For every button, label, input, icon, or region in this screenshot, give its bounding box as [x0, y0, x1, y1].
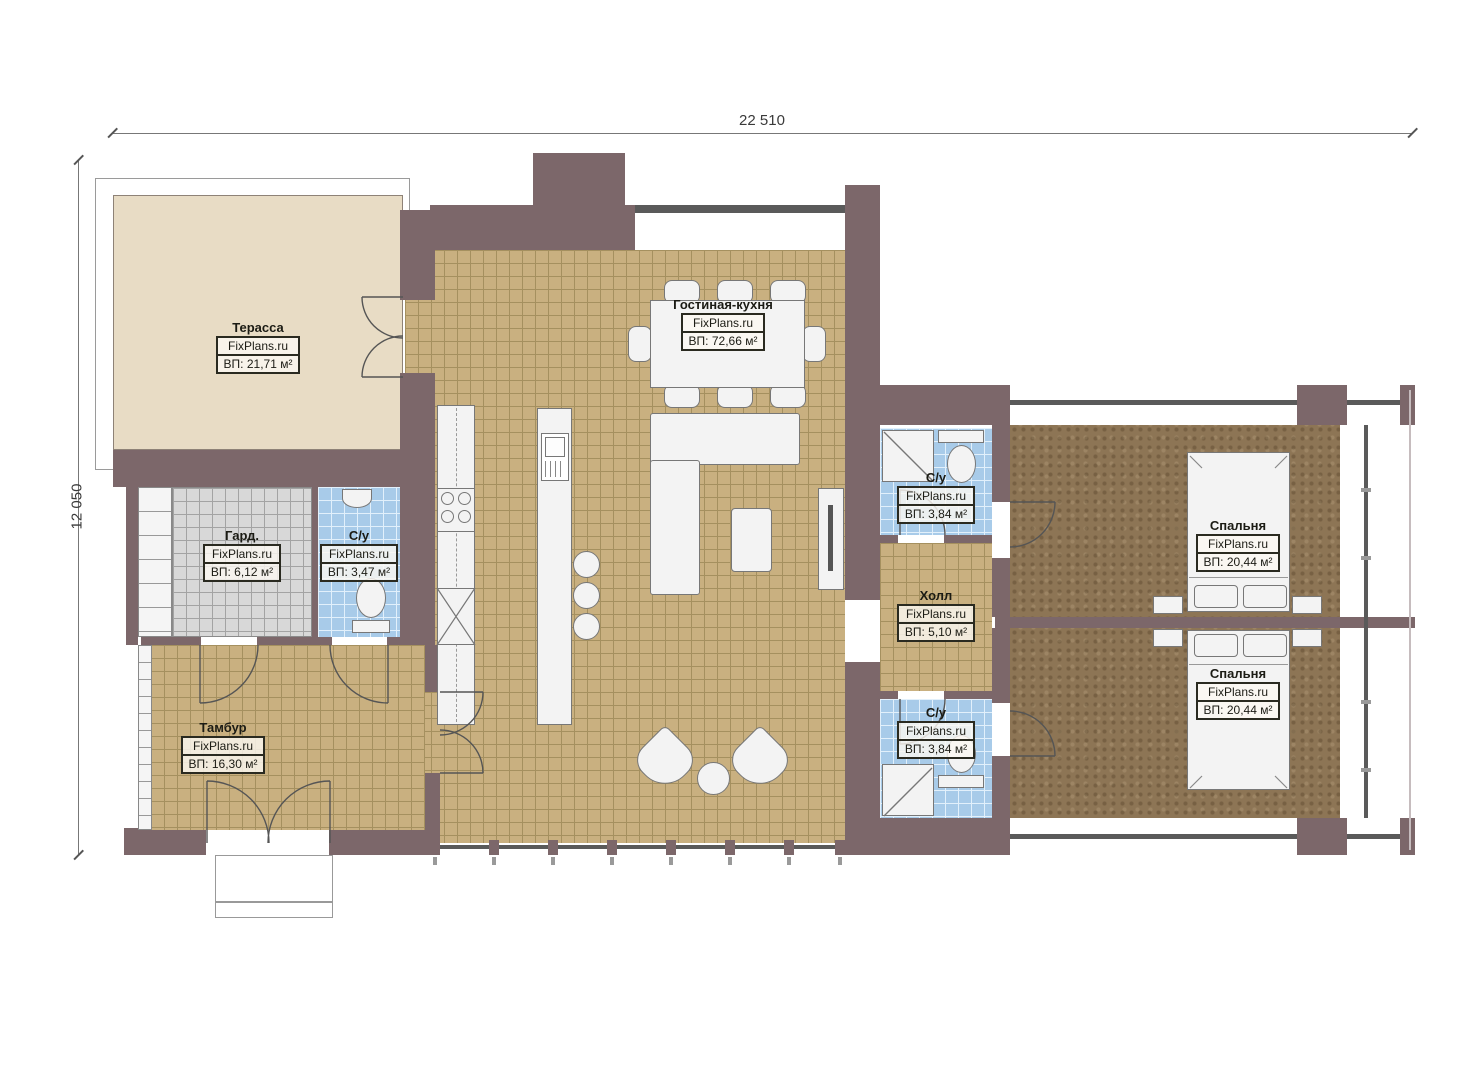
- burner: [441, 492, 454, 505]
- bar-stool: [573, 582, 600, 609]
- room-name: Спальня: [1210, 518, 1266, 533]
- entry-porch: [215, 855, 333, 902]
- room-label-bedroom-2: Спальня FixPlans.ru ВП: 20,44 м²: [1190, 666, 1286, 720]
- room-name: Гард.: [225, 528, 259, 543]
- room-brand: FixPlans.ru: [899, 606, 973, 622]
- shower-tray: [882, 764, 934, 816]
- wall: [944, 535, 992, 543]
- mullion: [1361, 556, 1371, 560]
- glazing-post: [489, 840, 499, 855]
- nightstand: [1292, 596, 1322, 614]
- wall: [845, 818, 1010, 855]
- wall: [124, 828, 140, 855]
- room-brand: FixPlans.ru: [899, 723, 973, 739]
- room-label-terrace: Терасса FixPlans.ru ВП: 21,71 м²: [198, 320, 318, 374]
- toilet-bowl: [356, 578, 386, 618]
- dimension-height-label: 12 050: [69, 452, 86, 562]
- wall: [126, 487, 138, 645]
- glass-wall-right: [1364, 425, 1368, 818]
- room-area: ВП: 5,10 м²: [899, 622, 973, 640]
- window: [1010, 400, 1297, 405]
- wall: [845, 185, 880, 385]
- room-label-tambour: Тамбур FixPlans.ru ВП: 16,30 м²: [168, 720, 278, 774]
- wall: [992, 756, 1010, 818]
- burner: [458, 492, 471, 505]
- washbasin: [342, 489, 372, 508]
- room-brand: FixPlans.ru: [1198, 684, 1279, 700]
- nightstand: [1153, 629, 1183, 647]
- floor-plan: 22 510 12 050: [0, 0, 1473, 1080]
- mullion: [433, 857, 437, 865]
- mullion: [1361, 768, 1371, 772]
- room-name: С/у: [926, 470, 946, 485]
- wall: [992, 628, 1010, 703]
- tv: [828, 505, 833, 571]
- room-label-hall: Холл FixPlans.ru ВП: 5,10 м²: [888, 588, 984, 642]
- room-brand: FixPlans.ru: [899, 488, 973, 504]
- sink-drainer: [545, 461, 565, 477]
- wall: [944, 691, 992, 699]
- wall: [400, 373, 435, 487]
- sofa-section-vertical: [650, 460, 700, 595]
- wall: [880, 691, 898, 699]
- room-name: С/у: [926, 705, 946, 720]
- wall: [113, 450, 430, 487]
- toilet-cistern: [938, 775, 984, 788]
- room-label-wardrobe: Гард. FixPlans.ru ВП: 6,12 м²: [196, 528, 288, 582]
- entry-step: [215, 902, 333, 918]
- toilet-cistern: [352, 620, 390, 633]
- room-area: ВП: 3,47 м²: [322, 562, 396, 580]
- room-area: ВП: 16,30 м²: [183, 754, 264, 772]
- counter-centerline: [456, 408, 457, 722]
- room-label-bathroom-top: С/у FixPlans.ru ВП: 3,84 м²: [890, 470, 982, 524]
- room-area: ВП: 6,12 м²: [205, 562, 279, 580]
- wall: [992, 558, 1010, 617]
- room-brand: FixPlans.ru: [205, 546, 279, 562]
- wall: [141, 637, 201, 645]
- sink-bowl: [545, 437, 565, 457]
- dimension-width-label: 22 510: [642, 112, 882, 129]
- wall: [138, 830, 206, 855]
- window: [1010, 834, 1297, 839]
- room-area: ВП: 20,44 м²: [1198, 552, 1279, 570]
- glazing-post: [548, 840, 558, 855]
- burner: [441, 510, 454, 523]
- toilet-cistern: [938, 430, 984, 443]
- window: [635, 205, 845, 213]
- glazing-post: [784, 840, 794, 855]
- room-brand: FixPlans.ru: [183, 738, 264, 754]
- mullion: [1361, 488, 1371, 492]
- glazing-post: [666, 840, 676, 855]
- mullion: [787, 857, 791, 865]
- glazing-post: [835, 840, 845, 855]
- blanket-line: [1189, 577, 1288, 578]
- wall: [992, 425, 1010, 502]
- wall: [845, 425, 880, 600]
- room-name: Терасса: [232, 320, 284, 335]
- pillow: [1243, 634, 1287, 657]
- burner: [458, 510, 471, 523]
- room-area: ВП: 21,71 м²: [218, 354, 299, 372]
- room-name: Холл: [920, 588, 953, 603]
- room-area: ВП: 3,84 м²: [899, 739, 973, 757]
- room-brand: FixPlans.ru: [1198, 536, 1279, 552]
- mullion: [838, 857, 842, 865]
- room-name: Гостиная-кухня: [673, 297, 773, 312]
- mullion: [492, 857, 496, 865]
- wall: [257, 637, 332, 645]
- bedroom-divider-wall: [995, 617, 1415, 628]
- dimension-line-top: [112, 133, 1412, 134]
- wall: [845, 385, 1010, 425]
- glazing-post: [725, 840, 735, 855]
- room-name: Тамбур: [199, 720, 246, 735]
- room-name: С/у: [349, 528, 369, 543]
- room-name: Спальня: [1210, 666, 1266, 681]
- wall: [1400, 818, 1415, 855]
- room-label-bathroom-small: С/у FixPlans.ru ВП: 3,47 м²: [316, 528, 402, 582]
- sofa-section-horizontal: [650, 413, 800, 465]
- mullion: [1361, 700, 1371, 704]
- wall: [329, 830, 430, 855]
- bar-stool: [573, 551, 600, 578]
- wall: [1297, 385, 1347, 425]
- glazing-post: [607, 840, 617, 855]
- wall: [1297, 818, 1347, 855]
- room-label-bathroom-bottom: С/у FixPlans.ru ВП: 3,84 м²: [890, 705, 982, 759]
- bar-stool: [573, 613, 600, 640]
- wall: [400, 487, 435, 645]
- room-brand: FixPlans.ru: [683, 315, 764, 331]
- wall: [880, 535, 898, 543]
- mullion: [669, 857, 673, 865]
- wall: [845, 662, 880, 818]
- wall: [430, 205, 635, 250]
- room-area: ВП: 72,66 м²: [683, 331, 764, 349]
- wall: [387, 637, 400, 645]
- bedroom-2-floor: [1010, 628, 1340, 818]
- pillow: [1194, 634, 1238, 657]
- nightstand: [1292, 629, 1322, 647]
- pillow: [1243, 585, 1287, 608]
- room-brand: FixPlans.ru: [322, 546, 396, 562]
- window: [1347, 834, 1400, 839]
- base-cabinet: [437, 588, 475, 645]
- wall: [1400, 385, 1415, 425]
- room-label-bedroom-1: Спальня FixPlans.ru ВП: 20,44 м²: [1190, 518, 1286, 572]
- window: [1347, 400, 1400, 405]
- wardrobe-closet: [138, 487, 172, 637]
- mullion: [551, 857, 555, 865]
- dining-chair: [802, 326, 826, 362]
- glazing-post: [430, 840, 440, 855]
- mullion: [728, 857, 732, 865]
- mullion: [610, 857, 614, 865]
- chimney: [533, 153, 625, 208]
- coffee-table: [731, 508, 772, 572]
- bedroom-1-floor: [1010, 425, 1340, 617]
- room-label-living-kitchen: Гостиная-кухня FixPlans.ru ВП: 72,66 м²: [648, 297, 798, 351]
- blanket-line: [1189, 664, 1288, 665]
- nightstand: [1153, 596, 1183, 614]
- tambour-siding: [138, 645, 152, 830]
- pillow: [1194, 585, 1238, 608]
- side-table: [697, 762, 730, 795]
- room-area: ВП: 20,44 м²: [1198, 700, 1279, 718]
- room-brand: FixPlans.ru: [218, 338, 299, 354]
- room-area: ВП: 3,84 м²: [899, 504, 973, 522]
- platform-edge-right: [1409, 390, 1411, 850]
